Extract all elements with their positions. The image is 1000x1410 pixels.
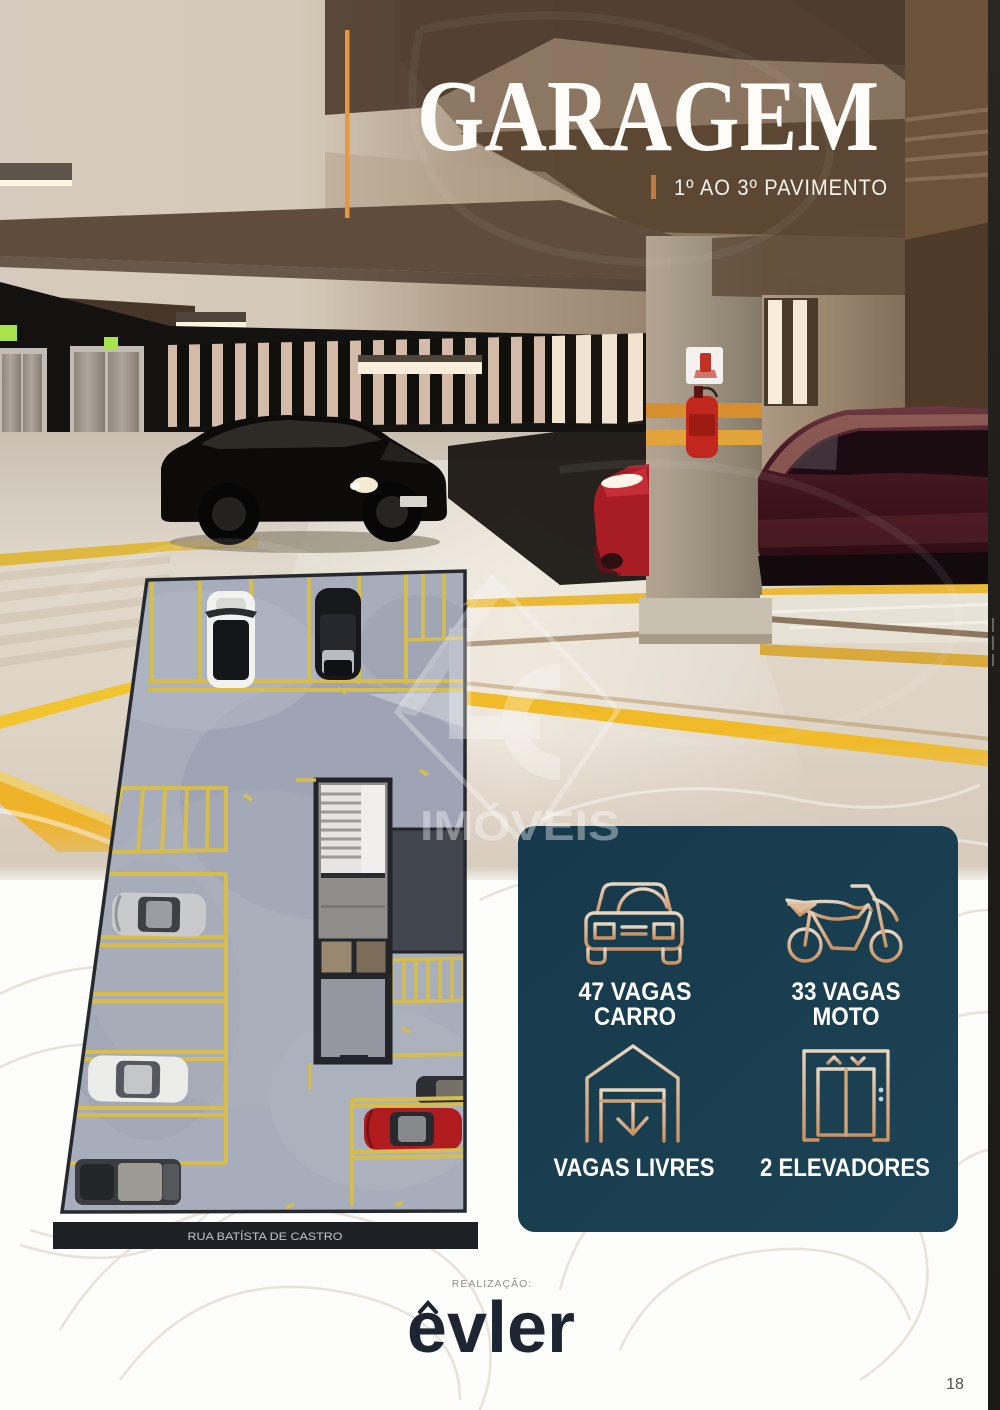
svg-text:1º AO 3º PAVIMENTO: 1º AO 3º PAVIMENTO — [674, 175, 888, 200]
svg-text:evler: evler — [407, 1288, 575, 1368]
svg-text:VAGAS LIVRES: VAGAS LIVRES — [554, 1154, 715, 1182]
svg-text:GARAGEM: GARAGEM — [417, 60, 879, 173]
svg-text:MOTO: MOTO — [813, 1003, 880, 1031]
svg-text:CARRO: CARRO — [594, 1003, 676, 1031]
svg-text:33 VAGAS: 33 VAGAS — [792, 978, 901, 1006]
svg-text:18: 18 — [946, 1376, 964, 1393]
svg-text:RUA BATÍSTA DE CASTRO: RUA BATÍSTA DE CASTRO — [188, 1230, 343, 1243]
svg-text:IMÓVEIS: IMÓVEIS — [420, 801, 620, 849]
svg-text:47 VAGAS: 47 VAGAS — [579, 978, 692, 1006]
svg-text:2 ELEVADORES: 2 ELEVADORES — [760, 1154, 930, 1182]
